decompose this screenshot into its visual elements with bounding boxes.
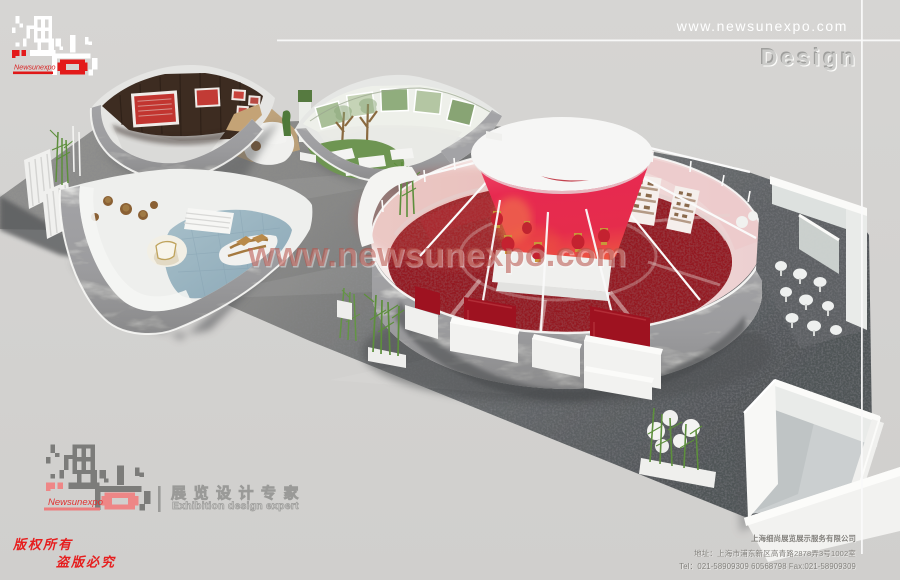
svg-text:版权所有: 版权所有 — [12, 537, 73, 552]
svg-text:上海细尚展览展示服务有限公司: 上海细尚展览展示服务有限公司 — [751, 534, 856, 543]
svg-text:Tel：021-58909309 60568798 Fax: Tel：021-58909309 60568798 Fax:021-589093… — [679, 562, 856, 571]
svg-text:Newsunexpo: Newsunexpo — [14, 63, 56, 72]
svg-text:www.newsunexpo.com: www.newsunexpo.com — [247, 236, 626, 274]
svg-text:Newsunexpo: Newsunexpo — [48, 497, 103, 508]
svg-text:地址：上海市浦东新区高青路2878弄3号1002室: 地址：上海市浦东新区高青路2878弄3号1002室 — [694, 548, 856, 558]
svg-text:盗版必究: 盗版必究 — [56, 555, 116, 570]
svg-text:Exhibition design expert: Exhibition design expert — [172, 500, 299, 512]
svg-text:Design: Design — [761, 45, 859, 71]
svg-text:www.newsunexpo.com: www.newsunexpo.com — [676, 18, 848, 34]
